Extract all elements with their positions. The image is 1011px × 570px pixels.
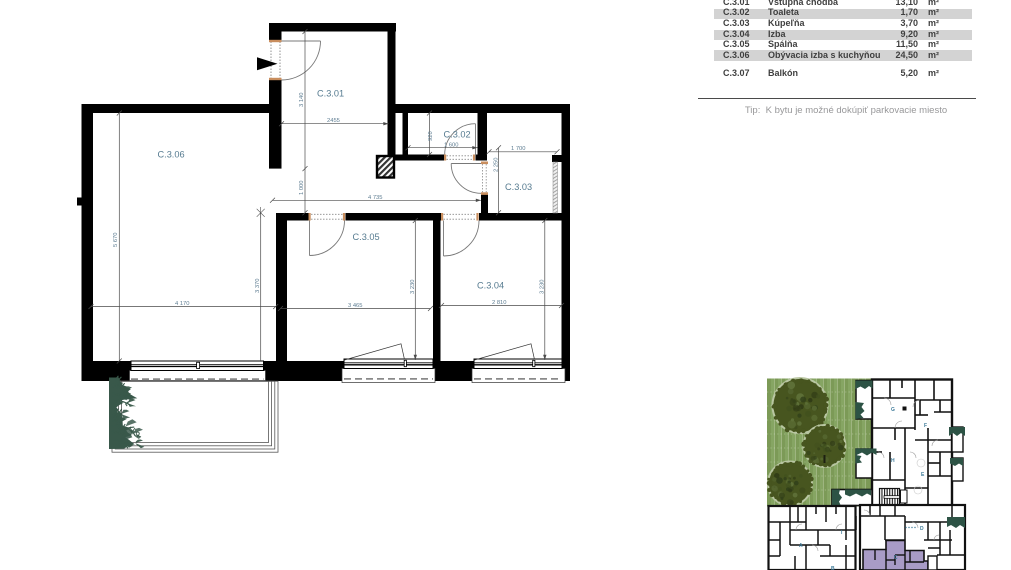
svg-text:C.3.06: C.3.06 [158, 150, 185, 160]
svg-text:A: A [799, 543, 803, 549]
svg-text:3 370: 3 370 [255, 278, 261, 293]
svg-text:C.3.01: C.3.01 [317, 89, 344, 99]
svg-text:1 700: 1 700 [511, 146, 526, 152]
svg-text:1 600: 1 600 [444, 143, 459, 149]
svg-text:2455: 2455 [327, 118, 340, 124]
svg-text:C.3.05: C.3.05 [353, 232, 380, 242]
svg-text:B: B [831, 566, 835, 570]
svg-text:3 230: 3 230 [540, 279, 546, 294]
svg-text:D: D [920, 526, 924, 532]
svg-text:3 465: 3 465 [348, 303, 363, 309]
svg-text:4 170: 4 170 [175, 301, 190, 307]
svg-text:3 230: 3 230 [410, 279, 416, 294]
svg-text:G: G [891, 407, 895, 413]
svg-text:C: C [894, 555, 898, 561]
svg-text:F: F [924, 423, 927, 429]
svg-text:3 140: 3 140 [299, 92, 305, 107]
svg-text:C.3.04: C.3.04 [477, 281, 504, 291]
svg-text:5 670: 5 670 [113, 232, 119, 247]
svg-text:2 810: 2 810 [492, 300, 507, 306]
svg-text:C.3.03: C.3.03 [505, 182, 532, 192]
svg-text:H: H [891, 458, 895, 464]
svg-text:4 735: 4 735 [368, 195, 383, 201]
svg-text:920: 920 [428, 131, 434, 141]
svg-text:2 250: 2 250 [494, 157, 500, 172]
svg-text:1 000: 1 000 [299, 180, 305, 195]
svg-text:C.3.02: C.3.02 [444, 130, 471, 140]
